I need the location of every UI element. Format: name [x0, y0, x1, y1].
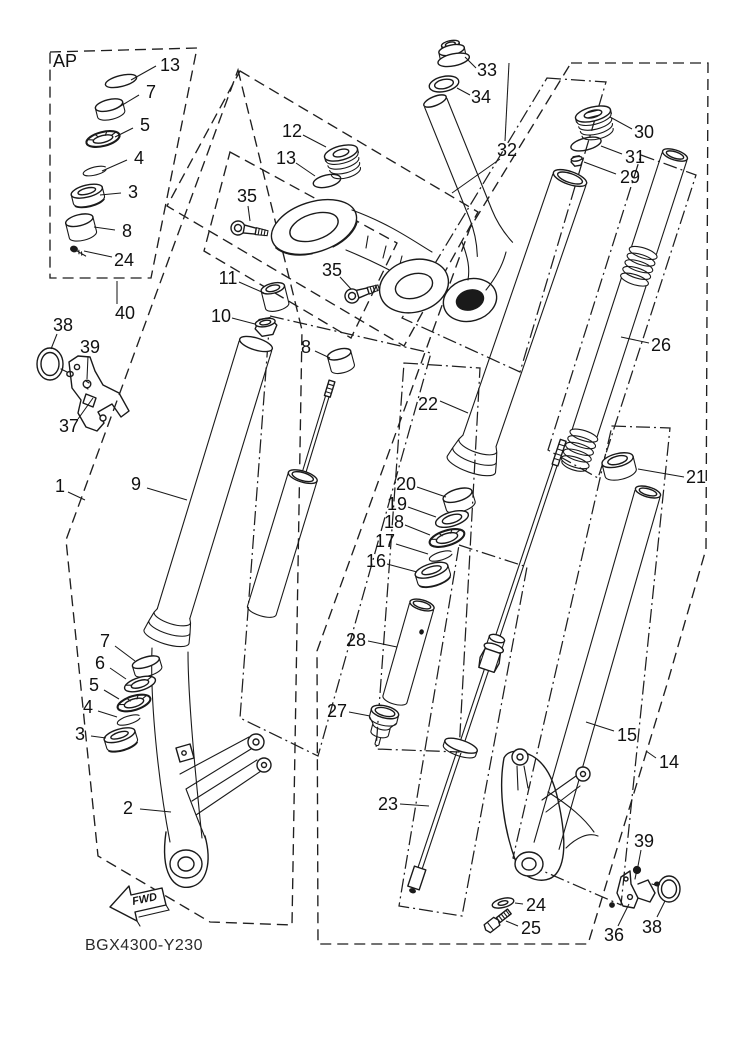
callout-27: 27: [327, 701, 347, 721]
fwd-arrow: FWD: [110, 886, 169, 926]
callout-39: 39: [80, 337, 100, 357]
leader-line-30: [610, 117, 632, 129]
dust-seal-3-left: [102, 725, 139, 755]
leader-line-15: [586, 722, 614, 731]
callout-5: 5: [140, 115, 150, 135]
leader-line-32: [452, 159, 500, 193]
bush-8-center: [326, 346, 355, 375]
washer-19: [434, 507, 471, 530]
leader-line-10: [232, 318, 255, 324]
callout-1: 1: [55, 476, 65, 496]
leader-line-24: [515, 903, 523, 904]
oil-seal-5-ap: [85, 128, 121, 150]
callout-18: 18: [384, 512, 404, 532]
callout-39: 39: [634, 831, 654, 851]
leader-line-3: [100, 193, 121, 195]
inner-tube-15: [534, 484, 662, 850]
callout-22: 22: [418, 394, 438, 414]
leader-line-4: [98, 711, 117, 717]
leader-line-8: [94, 227, 115, 230]
damper-rod-23: [396, 435, 580, 898]
caliper-arms-right: [512, 749, 598, 848]
callout-38: 38: [53, 315, 73, 335]
steering-stem-32: [416, 90, 513, 257]
leader-line-38: [657, 901, 665, 917]
bush-7-ap: [94, 96, 126, 122]
reflector-38-right: [652, 876, 680, 902]
callout-4: 4: [83, 697, 93, 717]
callout-34: 34: [471, 87, 491, 107]
seal-kit-box: [376, 363, 480, 752]
pinch-bolt-35-lower: [343, 281, 381, 305]
callout-25: 25: [521, 918, 541, 938]
leader-line-17: [396, 544, 428, 554]
leader-line-29: [584, 162, 616, 174]
leader-line-26: [621, 337, 649, 343]
callout-13: 13: [160, 55, 180, 75]
fork-assembly-14-box: [317, 63, 708, 944]
caliper-arms-left: [176, 734, 271, 840]
leader-line-18: [405, 525, 430, 535]
leader-line-6: [110, 668, 126, 679]
lower-leg-2: [152, 648, 271, 887]
leader-line-34: [457, 88, 470, 95]
callout-16: 16: [366, 551, 386, 571]
reflector-bracket-right: [610, 866, 680, 908]
lower-leg-right: [502, 749, 598, 880]
leader-lines: [51, 57, 684, 926]
callout-11: 11: [219, 268, 238, 288]
leader-line-39: [87, 356, 88, 379]
callout-24: 24: [526, 895, 546, 915]
seal-stack-center: [413, 485, 476, 591]
clip-17: [428, 549, 452, 563]
screw-39-right: [633, 866, 640, 879]
leader-line-20: [417, 487, 446, 497]
callout-10: 10: [211, 306, 231, 326]
callout-26: 26: [651, 335, 671, 355]
leader-line-36: [618, 904, 629, 926]
leader-line-5: [104, 690, 119, 699]
oil-seal-5-left: [116, 691, 153, 714]
o-ring-13: [312, 172, 342, 190]
callout-7: 7: [146, 82, 156, 102]
damper-tube-26-box: [548, 155, 696, 478]
callout-36: 36: [604, 925, 624, 945]
nut-10: [254, 317, 279, 338]
callout-3: 3: [75, 724, 85, 744]
leader-line-13: [131, 66, 156, 80]
ap-group-label: AP: [53, 51, 77, 71]
bush-21: [600, 450, 637, 483]
leader-line-35: [248, 206, 250, 221]
reflector-38-left: [37, 348, 73, 380]
callout-12: 12: [282, 121, 302, 141]
callout-17: 17: [375, 531, 395, 551]
damper-left: [246, 377, 346, 621]
callout-38: 38: [642, 917, 662, 937]
cap-bolt-12: [323, 142, 364, 182]
callout-3: 3: [128, 182, 138, 202]
leader-line-7: [115, 646, 135, 661]
callout-15: 15: [617, 725, 637, 745]
leader-line-25: [506, 921, 518, 926]
spring-seat-27: [363, 703, 400, 749]
callout-35: 35: [322, 260, 342, 280]
leader-line-38: [51, 334, 57, 349]
washer-13-ap: [104, 72, 138, 90]
leader-line-31: [601, 146, 622, 154]
leader-line-4: [102, 160, 127, 171]
callout-20: 20: [396, 474, 416, 494]
callout-28: 28: [346, 630, 366, 650]
leader-line-19: [408, 507, 436, 517]
pinch-bolt-35-upper: [230, 220, 269, 240]
callout-7: 7: [100, 631, 110, 651]
leader-line-2: [140, 809, 171, 812]
leader-line-1: [68, 492, 85, 500]
callout-2: 2: [123, 798, 133, 818]
callout-35: 35: [237, 186, 257, 206]
callout-29: 29: [620, 167, 640, 187]
clip-4-left: [116, 713, 140, 727]
leader-line-3: [91, 736, 106, 738]
cap-nut-33: [434, 37, 471, 69]
reflector-bracket-left: [37, 348, 129, 431]
callout-24: 24: [114, 250, 134, 270]
callout-5: 5: [89, 675, 99, 695]
seal-washer-34: [428, 74, 460, 95]
fork-assembly-1-box: [66, 70, 302, 925]
callout-21: 21: [686, 467, 706, 487]
leader-line-28: [368, 641, 397, 647]
callout-4: 4: [134, 148, 144, 168]
callout-8: 8: [301, 337, 311, 357]
leader-line-16: [387, 564, 417, 572]
dust-seal-3-ap: [70, 181, 106, 210]
leader-line-27: [349, 712, 370, 716]
leader-line-32: [505, 63, 509, 141]
dust-seal-16: [413, 559, 452, 591]
o-ring-31: [570, 134, 603, 153]
callout-30: 30: [634, 122, 654, 142]
oil-seal-18: [428, 526, 467, 551]
washer-24-bottom: [491, 896, 515, 910]
leader-line-24: [84, 251, 112, 257]
callout-labels: 1375438244038393719276543121335351110833…: [53, 55, 706, 945]
cylinder-28: [382, 597, 436, 708]
leader-line-39: [638, 850, 641, 866]
callout-23: 23: [378, 794, 398, 814]
leader-line-12: [303, 135, 326, 147]
triple-clamp-under: [264, 190, 506, 328]
callout-13: 13: [276, 148, 296, 168]
callout-40: 40: [115, 303, 135, 323]
callout-37: 37: [59, 416, 79, 436]
leader-line-21: [638, 469, 684, 477]
callout-32: 32: [497, 140, 517, 160]
inner-tube-22-box: [402, 78, 606, 372]
callout-14: 14: [659, 752, 679, 772]
screw-39-left: [83, 380, 91, 389]
callout-31: 31: [625, 147, 645, 167]
bolt-25: [483, 908, 513, 934]
damper-tube-26: [559, 146, 690, 475]
bracket-36: [610, 871, 655, 908]
collar-11: [260, 281, 290, 314]
outer-tube-9: [142, 331, 280, 650]
callout-9: 9: [131, 474, 141, 494]
leader-line-22: [440, 401, 468, 413]
leader-line-23: [400, 804, 429, 806]
leader-line-13: [296, 163, 315, 176]
leader-line-9: [147, 488, 187, 500]
callout-6: 6: [95, 653, 105, 673]
front-fork-exploded-diagram: FWD 137543824403839371927654312133535111…: [0, 0, 744, 1052]
callout-19: 19: [387, 494, 407, 514]
callout-8: 8: [122, 221, 132, 241]
drawing-code: BGX4300-Y230: [85, 937, 203, 954]
leader-line-33: [465, 57, 476, 68]
cup-8-ap: [64, 211, 97, 243]
callout-33: 33: [477, 60, 497, 80]
parts-diagram-page: FWD 137543824403839371927654312133535111…: [0, 0, 744, 1052]
leader-line-14: [646, 751, 656, 758]
